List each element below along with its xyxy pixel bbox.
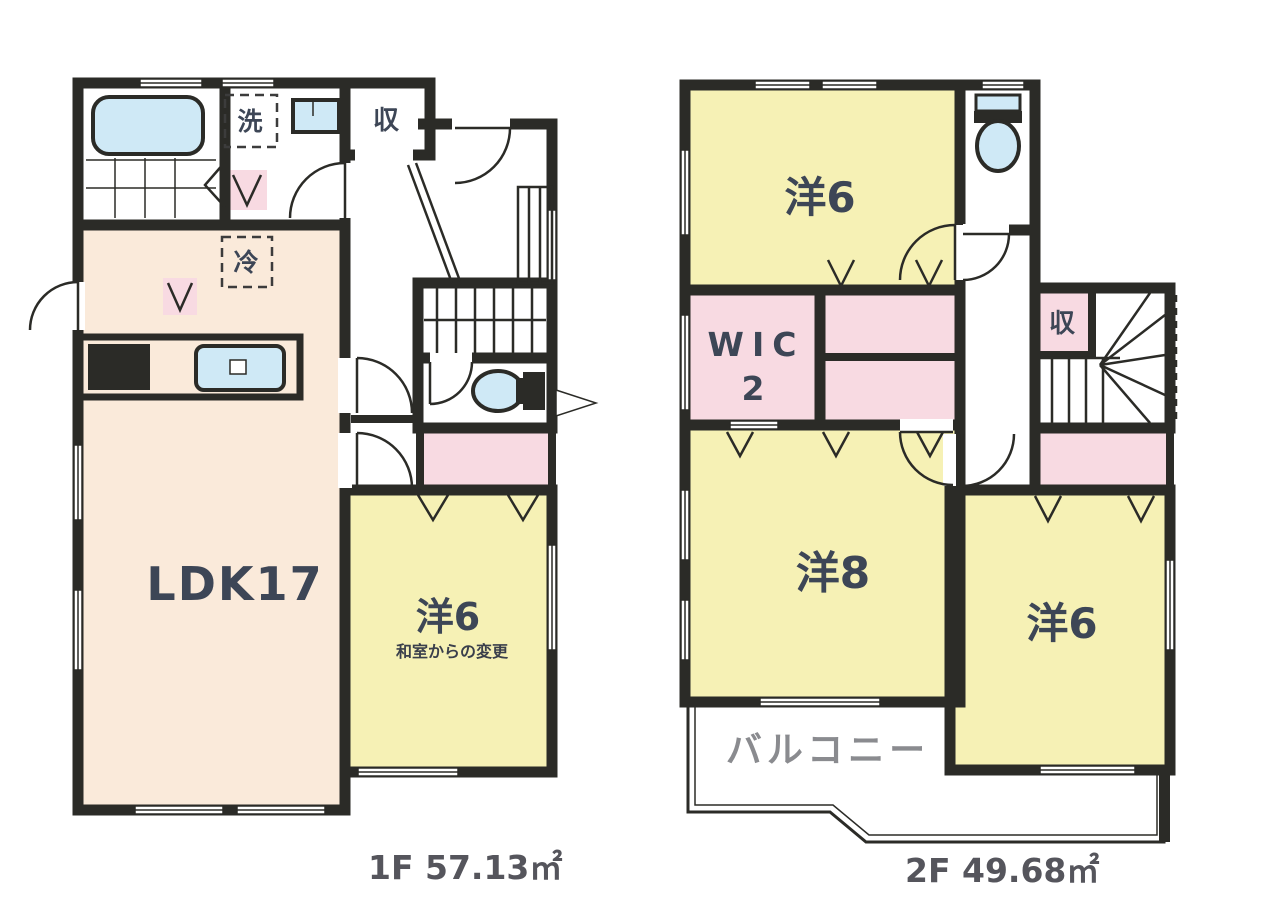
- window: [681, 600, 689, 660]
- window: [681, 150, 689, 235]
- floorplan-page: LDK17 洋6 和室からの変更 収 洗 冷 1F 57.13㎡: [0, 0, 1280, 903]
- entrance-step-line: [408, 163, 460, 283]
- window: [755, 81, 810, 89]
- window: [1040, 766, 1135, 774]
- window: [760, 698, 880, 706]
- wic-label: WIC: [708, 325, 805, 364]
- toilet-door-2f: [963, 234, 1009, 280]
- window: [74, 590, 82, 670]
- window: [135, 806, 223, 814]
- window: [74, 445, 82, 520]
- floor-2f-plan: 洋6 WIC 2 収 洋8 洋6 バルコニー 2F 49.68㎡: [681, 81, 1176, 890]
- storage-2f-label: 収: [1049, 309, 1076, 339]
- bedroom6-1f-door: [357, 433, 412, 488]
- closet-1f: [420, 428, 552, 490]
- closet-2f-upper: [820, 290, 960, 357]
- ldk-label: LDK17: [146, 557, 323, 611]
- bedroom8-label: 洋8: [796, 548, 871, 599]
- window: [681, 490, 689, 560]
- floor-1f-plan: LDK17 洋6 和室からの変更 収 洗 冷 1F 57.13㎡: [30, 79, 596, 887]
- kitchen-back-door: [30, 282, 78, 330]
- floor-1f-room-fills: [78, 83, 552, 810]
- floorplan-canvas: LDK17 洋6 和室からの変更 収 洗 冷 1F 57.13㎡: [0, 0, 1280, 903]
- entrance-door: [455, 128, 510, 183]
- window: [222, 79, 274, 87]
- window: [140, 79, 202, 87]
- balcony-label: バルコニー: [726, 730, 930, 771]
- bedroom6-top-label: 洋6: [784, 173, 855, 222]
- bedroom6-right-door: [962, 434, 1014, 486]
- closet-2f-lower: [820, 357, 960, 425]
- fridge-label: 冷: [233, 248, 258, 277]
- toilet-icon-2f: [974, 95, 1022, 171]
- wic-size-label: 2: [742, 369, 765, 408]
- bedroom6-right-label: 洋6: [1026, 599, 1097, 648]
- window: [730, 421, 778, 429]
- window: [982, 81, 1024, 89]
- stairs-1f: [424, 288, 546, 353]
- window: [681, 315, 689, 410]
- floor2-area-label: 2F 49.68㎡: [905, 851, 1099, 890]
- ldk-door: [357, 358, 412, 413]
- stove-icon: [88, 344, 150, 390]
- floor1-area-label: 1F 57.13㎡: [368, 848, 562, 887]
- laundry-label: 洗: [237, 107, 262, 136]
- window: [548, 545, 556, 650]
- bedroom6-1f-label: 洋6: [416, 595, 480, 639]
- room-ldk: [78, 225, 345, 810]
- vent-fan-marker: [556, 390, 596, 416]
- toilet-door-1f: [430, 362, 472, 404]
- bathtub-icon: [93, 97, 203, 154]
- storage-1f-label: 収: [373, 106, 400, 136]
- window: [1166, 560, 1174, 650]
- closet-2f-right: [1035, 428, 1170, 490]
- toilet-icon-1f: [473, 371, 545, 411]
- window: [358, 768, 458, 776]
- washbasin-icon: [293, 100, 339, 132]
- window: [822, 81, 877, 89]
- bedroom6-1f-note: 和室からの変更: [396, 642, 509, 661]
- window: [237, 806, 325, 814]
